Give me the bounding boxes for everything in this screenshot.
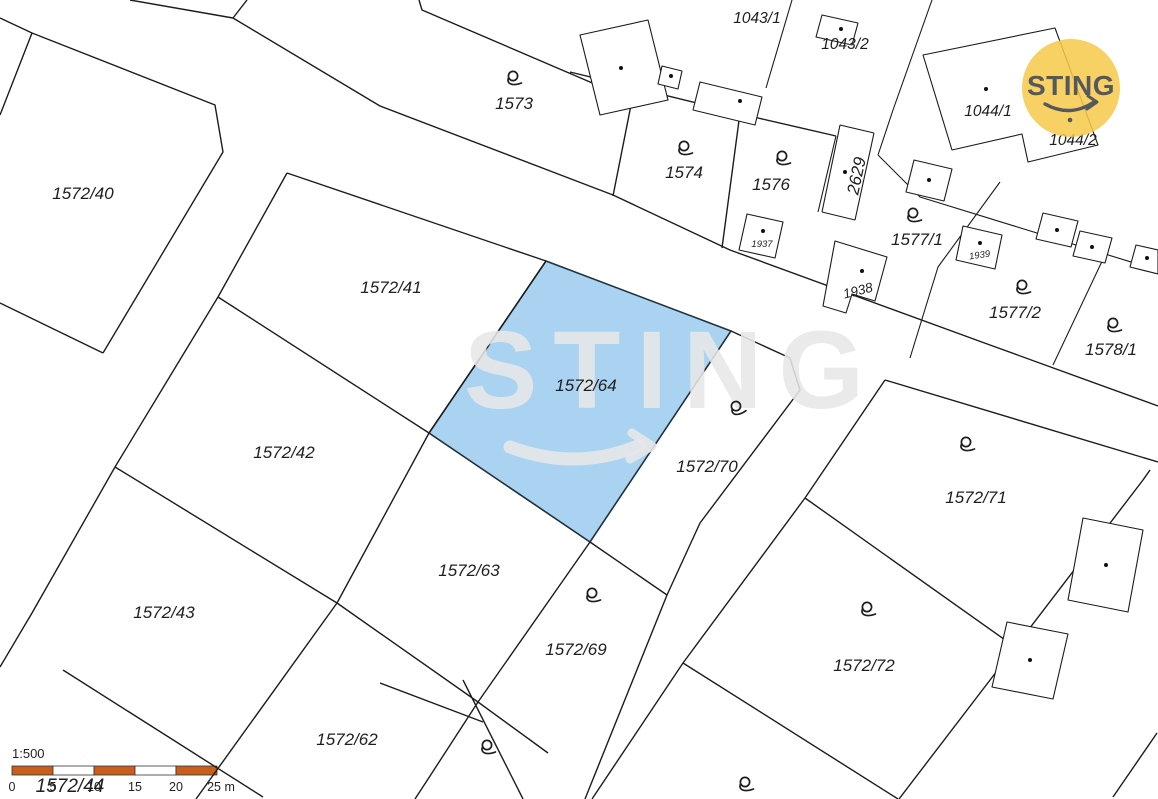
scale-tick-5: 5 [50, 780, 57, 794]
cadastral-map[interactable]: STING 1572/40 1572/41 1572/42 1572/43 15… [0, 0, 1158, 799]
scale-tick-10: 10 [87, 780, 101, 794]
scale-tick-15: 15 [128, 780, 142, 794]
sting-logo-smile-dot [1068, 118, 1073, 123]
parcel-label-1572-70: 1572/70 [676, 457, 738, 476]
parcel-label-1572-40: 1572/40 [52, 184, 114, 203]
scalebar [12, 766, 217, 775]
parcel-label-1043-2: 1043/2 [821, 36, 869, 53]
scale-tick-20: 20 [169, 780, 183, 794]
parcel-label-1044-1: 1044/1 [964, 103, 1011, 120]
parcel-label-1573: 1573 [495, 94, 533, 113]
parcel-label-1572-64: 1572/64 [555, 376, 616, 395]
parcel-label-1576: 1576 [752, 175, 790, 194]
parcel-label-1572-69: 1572/69 [545, 640, 607, 659]
parcel-label-1937: 1937 [751, 239, 773, 250]
parcel-label-1572-41: 1572/41 [360, 278, 421, 297]
parcel-label-1572-63: 1572/63 [438, 561, 500, 580]
parcel-label-1043-1: 1043/1 [733, 10, 780, 27]
sting-logo: STING [1022, 39, 1120, 137]
parcel-label-1572-71: 1572/71 [945, 488, 1006, 507]
watermark-text: STING [464, 309, 880, 432]
parcel-label-1574: 1574 [665, 163, 703, 182]
scale-tick-0: 0 [9, 780, 16, 794]
parcel-label-1572-72: 1572/72 [833, 656, 895, 675]
parcel-label-1572-43: 1572/43 [133, 603, 195, 622]
sting-logo-text: STING [1027, 70, 1115, 101]
scale-ratio: 1:500 [12, 746, 45, 761]
parcel-label-1572-42: 1572/42 [253, 443, 315, 462]
parcel-label-1577-2: 1577/2 [989, 303, 1042, 322]
scale-tick-25: 25 m [207, 780, 235, 794]
parcel-label-1578-1: 1578/1 [1085, 340, 1137, 359]
parcel-label-1572-62: 1572/62 [316, 730, 378, 749]
parcel-label-1577-1: 1577/1 [891, 230, 943, 249]
